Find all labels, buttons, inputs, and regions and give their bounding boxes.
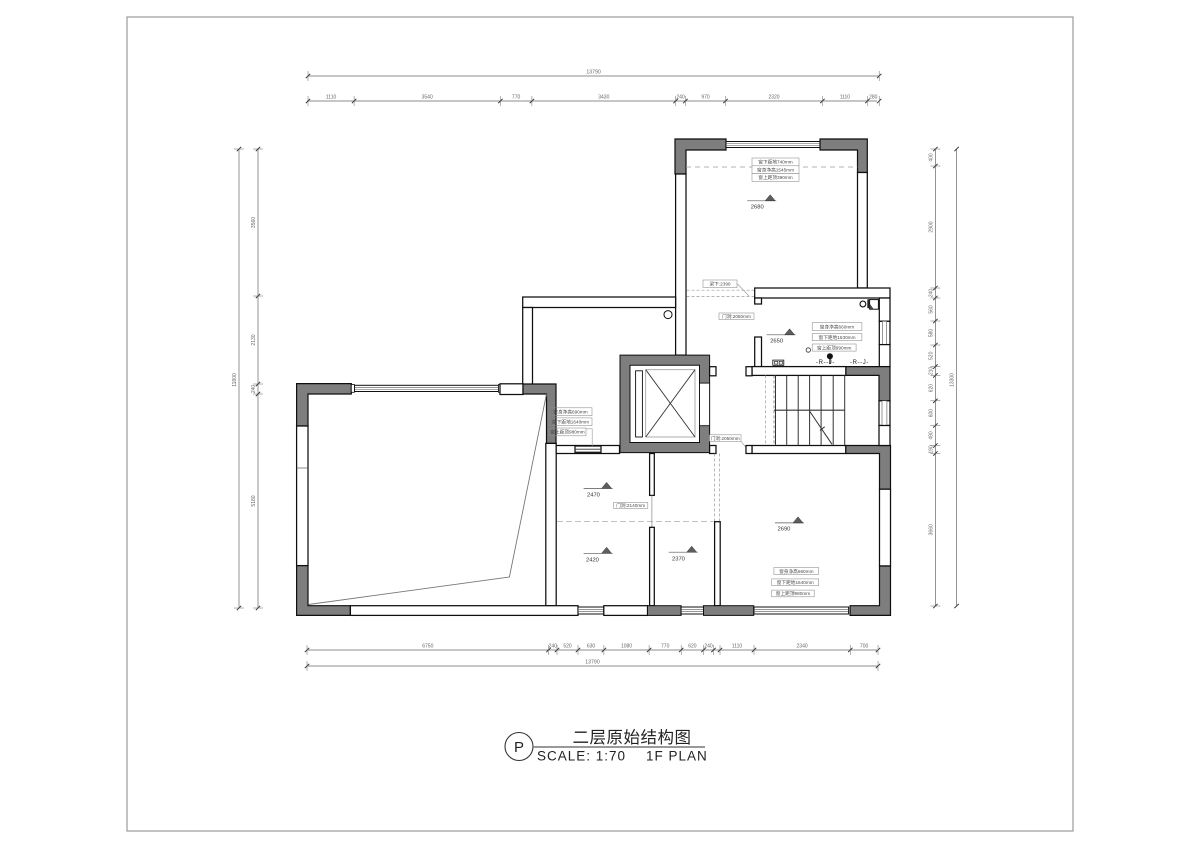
svg-text:11800: 11800 xyxy=(232,373,238,387)
svg-text:窗下距地740mm: 窗下距地740mm xyxy=(758,159,792,166)
svg-text:630: 630 xyxy=(587,644,596,650)
svg-text:6750: 6750 xyxy=(422,644,433,650)
svg-text:二层原始结构图: 二层原始结构图 xyxy=(573,728,692,747)
svg-text:240: 240 xyxy=(676,95,685,101)
svg-text:5180: 5180 xyxy=(251,495,257,506)
svg-text:SCALE: 1:70: SCALE: 1:70 xyxy=(537,749,626,764)
svg-text:3430: 3430 xyxy=(598,95,609,101)
svg-text:梁下:2390: 梁下:2390 xyxy=(709,281,730,288)
svg-text:P: P xyxy=(514,739,524,756)
svg-text:2680: 2680 xyxy=(751,205,764,211)
svg-text:13790: 13790 xyxy=(585,660,600,666)
svg-text:2320: 2320 xyxy=(768,95,779,101)
svg-text:770: 770 xyxy=(512,95,521,101)
svg-text:2420: 2420 xyxy=(586,558,599,564)
svg-text:1080: 1080 xyxy=(621,644,632,650)
svg-text:窗身净高1545mm: 窗身净高1545mm xyxy=(757,167,794,174)
svg-text:门洞:2140mm: 门洞:2140mm xyxy=(616,502,645,509)
svg-text:240: 240 xyxy=(549,644,558,650)
svg-text:2900: 2900 xyxy=(928,221,934,232)
svg-text:1110: 1110 xyxy=(732,644,743,650)
svg-text:280: 280 xyxy=(869,95,878,101)
svg-text:2130: 2130 xyxy=(251,334,257,345)
svg-text:窗上距顶980mm: 窗上距顶980mm xyxy=(550,429,584,436)
svg-text:560: 560 xyxy=(928,305,934,314)
svg-text:240: 240 xyxy=(928,289,934,298)
svg-text:520: 520 xyxy=(928,351,934,360)
svg-text:门洞:2050mm: 门洞:2050mm xyxy=(711,435,740,442)
svg-text:窗上距顶390mm: 窗上距顶390mm xyxy=(758,174,792,181)
svg-text:520: 520 xyxy=(563,644,572,650)
svg-text:1110: 1110 xyxy=(326,95,337,101)
svg-text:13300: 13300 xyxy=(950,373,956,387)
svg-text:190: 190 xyxy=(928,445,934,454)
svg-text:1110: 1110 xyxy=(840,95,851,101)
svg-text:窗下距地1640mm: 窗下距地1640mm xyxy=(777,579,814,586)
svg-text:620: 620 xyxy=(688,644,697,650)
svg-text:600: 600 xyxy=(928,409,934,418)
svg-text:770: 770 xyxy=(661,644,670,650)
svg-text:2370: 2370 xyxy=(672,557,685,563)
svg-text:700: 700 xyxy=(860,644,869,650)
svg-text:2340: 2340 xyxy=(797,644,808,650)
svg-text:3660: 3660 xyxy=(928,524,934,535)
svg-text:窗下距地1630mm: 窗下距地1630mm xyxy=(819,334,856,341)
svg-text:3540: 3540 xyxy=(422,95,433,101)
svg-text:门洞:2050mm: 门洞:2050mm xyxy=(722,313,751,320)
svg-text:490: 490 xyxy=(928,431,934,440)
svg-text:2470: 2470 xyxy=(587,493,600,499)
svg-text:3560: 3560 xyxy=(251,217,257,228)
svg-text:970: 970 xyxy=(701,95,710,101)
svg-text:窗身净高660mm: 窗身净高660mm xyxy=(820,323,854,330)
svg-text:240: 240 xyxy=(704,644,713,650)
svg-text:400: 400 xyxy=(928,153,934,162)
svg-text:窗上距顶980mm: 窗上距顶980mm xyxy=(776,590,810,597)
svg-text:窗下距地1640mm: 窗下距地1640mm xyxy=(552,419,589,426)
svg-text:窗身净高660mm: 窗身净高660mm xyxy=(779,568,813,575)
svg-text:窗身净高690mm: 窗身净高690mm xyxy=(553,409,587,416)
svg-text:13790: 13790 xyxy=(586,70,601,76)
svg-text:620: 620 xyxy=(928,384,934,393)
svg-text:2650: 2650 xyxy=(770,339,783,345)
svg-text:-R--J-: -R--J- xyxy=(850,360,869,366)
svg-text:2690: 2690 xyxy=(778,527,791,533)
svg-text:240: 240 xyxy=(251,385,257,394)
svg-text:1F PLAN: 1F PLAN xyxy=(646,749,708,764)
svg-text:窗上距顶990mm: 窗上距顶990mm xyxy=(817,344,851,351)
svg-text:580: 580 xyxy=(928,329,934,338)
svg-text:-R--J-: -R--J- xyxy=(816,360,835,366)
svg-text:210: 210 xyxy=(928,367,934,376)
